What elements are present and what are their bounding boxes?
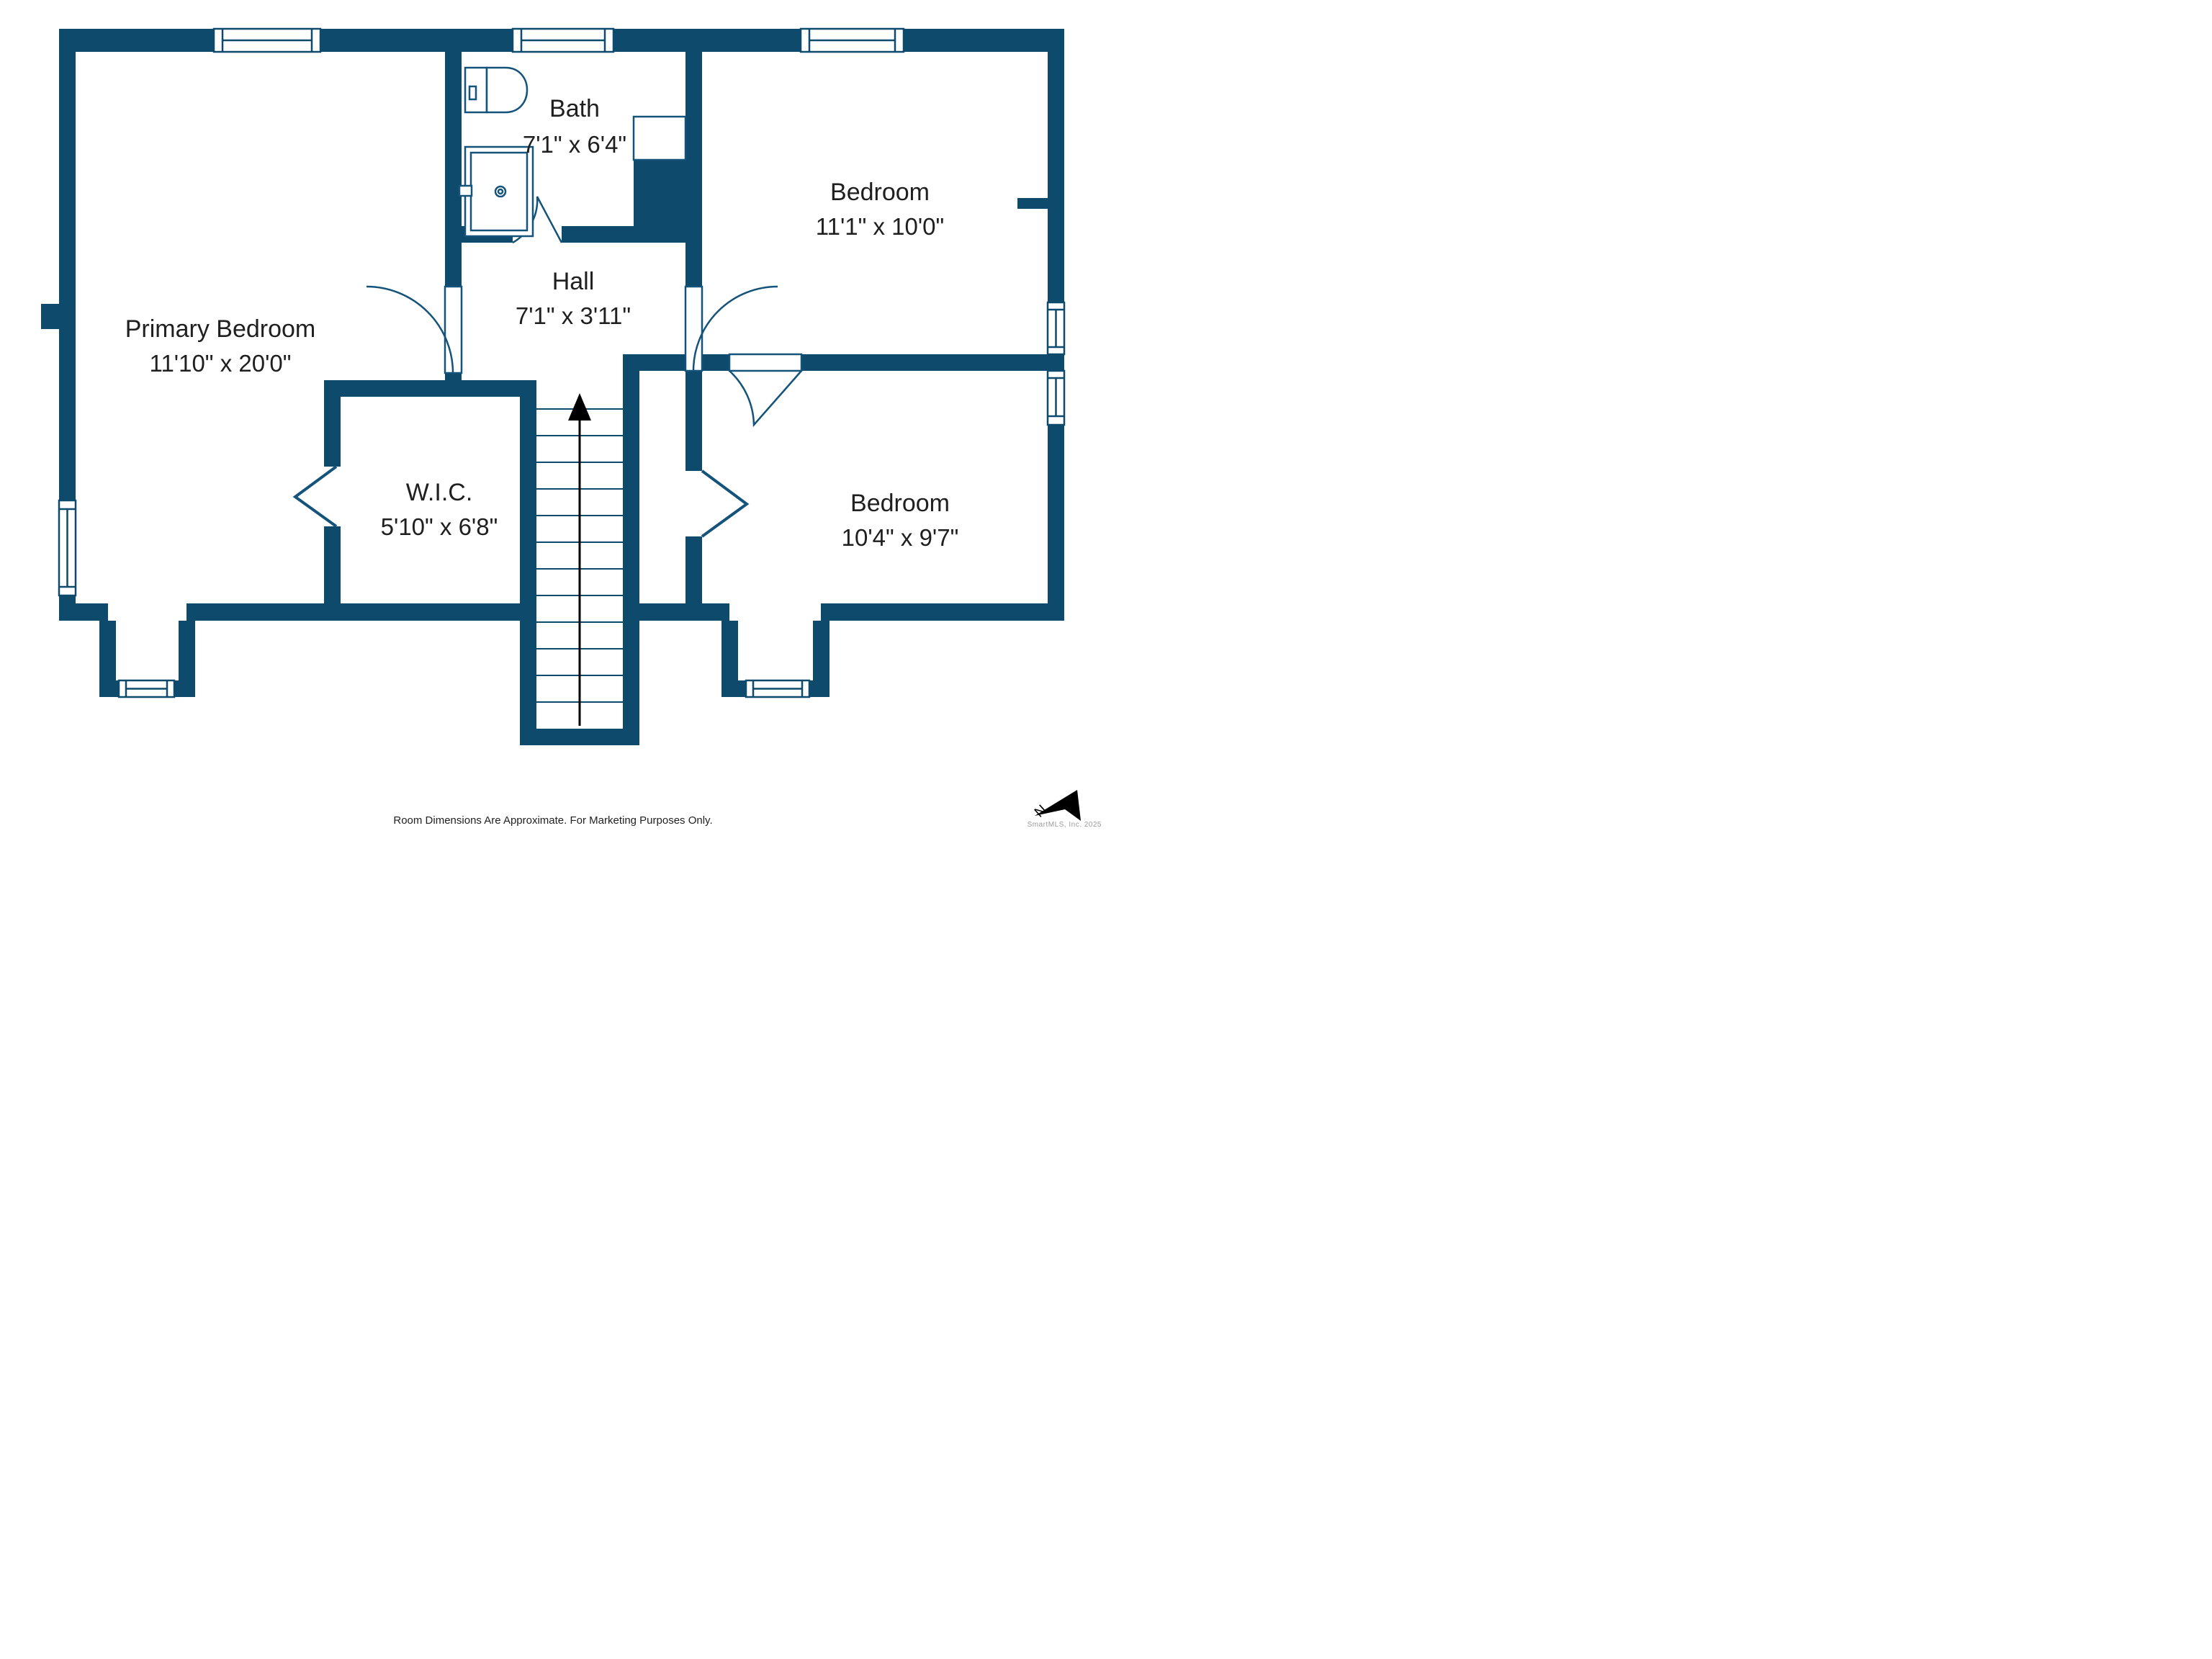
window-top-bedroom xyxy=(801,29,904,52)
room-dimensions: 11'1" x 10'0" xyxy=(816,213,945,240)
room-name: Bedroom xyxy=(830,179,930,206)
door-bedroom-chevron xyxy=(702,471,747,536)
wall-right-lower xyxy=(1048,425,1064,603)
window-right-bedroom-lower xyxy=(1048,371,1064,425)
door-bedroom-divider xyxy=(729,354,801,425)
room-dimensions: 11'10" x 20'0" xyxy=(150,350,292,377)
wall-divider-left xyxy=(639,354,729,371)
door-wic-chevron xyxy=(295,467,336,526)
room-name: Bedroom xyxy=(850,490,950,517)
wall-left-upper xyxy=(59,52,76,304)
window-top-bath xyxy=(513,29,613,52)
watermark-text: SmartMLS, Inc. 2025 xyxy=(1028,821,1102,829)
stair-wall-west xyxy=(520,397,536,745)
room-label-bath: Bath 7'1" x 6'4" xyxy=(523,95,626,158)
room-name: Hall xyxy=(552,268,595,295)
wall-bottom-right xyxy=(821,603,1064,621)
room-label-hall: Hall 7'1" x 3'11" xyxy=(516,268,631,329)
toilet-icon xyxy=(465,68,527,112)
room-labels: Primary Bedroom 11'10" x 20'0" Bath 7'1"… xyxy=(125,95,959,551)
room-dimensions: 7'1" x 3'11" xyxy=(516,302,631,329)
door-swing xyxy=(367,287,453,373)
window-top-primary xyxy=(214,29,320,52)
floor-plan-page: Primary Bedroom 11'10" x 20'0" Bath 7'1"… xyxy=(0,0,1106,829)
stair-wall-east xyxy=(623,354,639,745)
wall-divider-right xyxy=(801,354,1064,371)
shower-icon xyxy=(459,147,533,236)
bay-left-east xyxy=(179,621,195,697)
bath-closet xyxy=(634,117,685,160)
window-right-bedroom-upper xyxy=(1048,302,1064,354)
window-left-primary xyxy=(59,500,76,595)
wall-wic-west-upper xyxy=(324,397,341,467)
disclaimer-text: Room Dimensions Are Approximate. For Mar… xyxy=(0,814,1106,827)
wall-east-col-mid xyxy=(685,371,702,471)
wall-bottom-right-of-stair xyxy=(639,603,729,621)
door-hall-west xyxy=(367,287,462,373)
wall-bottom-mid xyxy=(186,603,520,621)
room-dimensions: 7'1" x 6'4" xyxy=(523,131,626,158)
wall-wic-west-lower xyxy=(324,526,341,603)
wall-bottom-left xyxy=(59,603,108,621)
room-dimensions: 5'10" x 6'8" xyxy=(381,513,498,540)
room-label-bedroom-lower-right: Bedroom 10'4" x 9'7" xyxy=(842,490,959,551)
room-name: Primary Bedroom xyxy=(125,315,316,343)
wall-mid-col-upper xyxy=(445,52,462,287)
room-name: Bath xyxy=(549,95,600,122)
room-dimensions: 10'4" x 9'7" xyxy=(842,524,959,551)
wall-left-mid xyxy=(59,329,76,500)
wall-wic-north xyxy=(324,380,536,397)
stairs xyxy=(536,393,623,726)
floor-plan-svg: Primary Bedroom 11'10" x 20'0" Bath 7'1"… xyxy=(0,0,1106,829)
wall-east-col-upper xyxy=(685,52,702,287)
bay-right-east xyxy=(813,621,829,697)
room-label-primary-bedroom: Primary Bedroom 11'10" x 20'0" xyxy=(125,315,316,377)
wall-bath-closet-block xyxy=(634,160,685,243)
wall-left-notch xyxy=(41,304,76,329)
wall-east-col-lower xyxy=(685,536,702,603)
stair-wall-south xyxy=(520,729,639,745)
wall-right-stub xyxy=(1017,198,1048,209)
door-swing xyxy=(729,371,801,425)
wall-right-upper xyxy=(1048,52,1064,302)
room-label-wic: W.I.C. 5'10" x 6'8" xyxy=(381,479,498,540)
window-bay-right xyxy=(746,680,809,697)
window-bay-left xyxy=(119,680,174,697)
room-label-bedroom-upper-right: Bedroom 11'1" x 10'0" xyxy=(816,179,945,240)
room-name: W.I.C. xyxy=(406,479,473,506)
